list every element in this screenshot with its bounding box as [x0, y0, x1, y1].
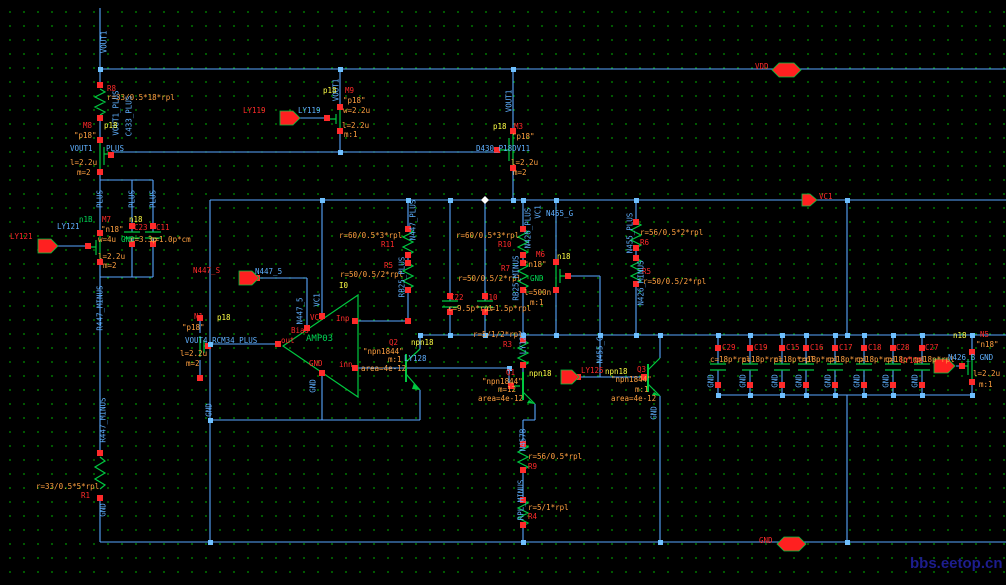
net-gnd-vertical-c15[interactable]: GND — [771, 374, 779, 388]
m8-model[interactable]: p18 — [104, 122, 118, 130]
n447s-pin-label[interactable]: N447_S — [193, 267, 220, 275]
m7-model-quoted[interactable]: "n18" — [101, 226, 124, 234]
m8-length[interactable]: l=2.2u — [70, 159, 97, 167]
n455g-net-label[interactable]: N455_G — [546, 210, 573, 218]
net-plus-label[interactable]: PLUS — [106, 145, 124, 153]
c18-name[interactable]: C18 — [868, 344, 882, 352]
n447s-net-label[interactable]: N447_5 — [255, 268, 282, 276]
r10-value[interactable]: r=60/0.5*3*rpl — [456, 232, 519, 240]
n1-mult[interactable]: m=2 — [186, 360, 200, 368]
ly125-pin-label[interactable]: LY125 — [581, 367, 604, 375]
n5-length[interactable]: l=2.2u — [973, 370, 1000, 378]
opamp-pin-gnd[interactable]: GND — [309, 360, 323, 368]
ly119-net-label[interactable]: LY119 — [298, 107, 321, 115]
net-c433plus-vertical[interactable]: C433_PLUS — [125, 96, 133, 137]
ly121-net-label[interactable]: LY121 — [57, 223, 80, 231]
r11-name[interactable]: R11 — [381, 241, 395, 249]
c10-name[interactable]: C10 — [484, 294, 498, 302]
n1-model-quoted[interactable]: "p18" — [182, 324, 205, 332]
opamp-pin-vc1[interactable]: VC1 — [310, 314, 324, 322]
r5-name[interactable]: R5 — [384, 262, 393, 270]
net-gnd-vertical-opamp[interactable]: GND — [309, 379, 317, 393]
m9-length[interactable]: l=2.2u — [342, 122, 369, 130]
n5-model[interactable]: n18 — [953, 332, 967, 340]
c29-name[interactable]: C29 — [722, 344, 736, 352]
net-rplminus-vertical[interactable]: RPL_MINUS — [517, 480, 525, 521]
c19-name[interactable]: C19 — [754, 344, 768, 352]
net-plus-vertical-1[interactable]: PLUS — [96, 190, 104, 208]
r9-value[interactable]: r=56/0.5*rpl — [528, 453, 582, 461]
opamp-instance[interactable]: I0 — [339, 282, 348, 290]
c28-name[interactable]: C28 — [896, 344, 910, 352]
net-rb25plus-vertical[interactable]: RB25_PLUS — [398, 257, 406, 298]
m7-width[interactable]: w=4u — [98, 236, 116, 244]
net-vout1-label[interactable]: VOUT1 — [70, 145, 93, 153]
m8-model-quoted[interactable]: "p18" — [74, 132, 97, 140]
n5-name[interactable]: N5 — [980, 331, 989, 339]
net-n426plus-vertical[interactable]: N426_PLUS — [524, 208, 532, 249]
r5-value[interactable]: r=50/0.5/2*rpl — [340, 271, 403, 279]
net-n455g-vertical[interactable]: N455_G — [596, 336, 604, 363]
c22-name[interactable]: C22 — [450, 294, 464, 302]
r6-value[interactable]: r=56/0.5*2*rpl — [640, 229, 703, 237]
c23-name[interactable]: C23 — [134, 224, 148, 232]
net-plus-vertical-2[interactable]: PLUS — [128, 190, 136, 208]
net-n457b-vertical[interactable]: N457B — [519, 429, 527, 452]
m7-name[interactable]: M7 — [102, 216, 111, 224]
ly126-pin-label[interactable]: LY126 — [900, 357, 923, 365]
m3-mult[interactable]: m=2 — [513, 169, 527, 177]
net-r447minus-vertical-2[interactable]: R447_MINUS — [99, 397, 107, 442]
net-d430-label[interactable]: D430_P18DV11 — [476, 145, 530, 153]
net-gnd-vertical-c29[interactable]: GND — [707, 374, 715, 388]
c10-value[interactable]: c=1.5p*rpl — [486, 305, 531, 313]
n1-name[interactable]: N1 — [194, 313, 203, 321]
n1-model[interactable]: p18 — [217, 314, 231, 322]
net-gnd-vertical-c16[interactable]: GND — [795, 374, 803, 388]
net-gnd-vertical-c17[interactable]: GND — [824, 374, 832, 388]
n5-mult[interactable]: m:1 — [979, 381, 993, 389]
net-vc1-vertical-rail[interactable]: VC1 — [534, 205, 542, 219]
m3-model[interactable]: p18 — [493, 123, 507, 131]
r1-name[interactable]: R1 — [81, 492, 90, 500]
r1-value[interactable]: r=33/0.5*5*rpl — [36, 483, 99, 491]
net-gnd-vertical-q3[interactable]: GND — [650, 406, 658, 420]
m6-mult[interactable]: m:1 — [530, 299, 544, 307]
net-ly128-label[interactable]: LY128 — [404, 355, 427, 363]
vc1-pin-label[interactable]: VC1 — [819, 193, 833, 201]
q3-area[interactable]: area=4e-12 — [611, 395, 656, 403]
m7-bulk-net[interactable]: n1B — [79, 216, 93, 224]
net-r447minus-vertical-1[interactable]: R447_MINUS — [96, 285, 104, 330]
net-gnd-vertical-n1[interactable]: GND — [205, 403, 213, 417]
q2-model[interactable]: npn18 — [411, 339, 434, 347]
net-vout4-label[interactable]: VOUT4 RCM34 PLUS — [185, 337, 257, 345]
r6-name[interactable]: R6 — [640, 239, 649, 247]
q2-area[interactable]: area=4e-12 — [361, 365, 406, 373]
net-plus-vertical-3[interactable]: PLUS — [149, 190, 157, 208]
m6-name[interactable]: M6 — [536, 251, 545, 259]
net-vc1-vertical-opamp[interactable]: VC1 — [313, 293, 321, 307]
r4-value[interactable]: r=5/1*rpl — [528, 504, 569, 512]
net-n447-vertical[interactable]: N447_5 — [296, 297, 304, 324]
net-rb25minus-vertical[interactable]: RB25_MINUS — [512, 255, 520, 300]
r11-value[interactable]: r=60/0.5*3*rpl — [339, 232, 402, 240]
m6-bulk[interactable]: GND — [530, 275, 544, 283]
m8-name[interactable]: M8 — [83, 122, 92, 130]
opamp-pin-out[interactable]: out — [281, 337, 295, 345]
r4-name[interactable]: R4 — [528, 513, 537, 521]
c16-name[interactable]: C16 — [810, 344, 824, 352]
schematic-canvas[interactable]: VOUT1R8r=33/0.5*18*rplVOUT1_PLUSC433_PLU… — [0, 0, 1006, 585]
watermark: bbs.eetop.cn — [910, 556, 1003, 571]
q2-name[interactable]: Q2 — [389, 339, 398, 347]
opamp-pin-inn[interactable]: inn — [339, 361, 353, 369]
r9-name[interactable]: R9 — [528, 463, 537, 471]
net-vout1-vertical-3[interactable]: VOUT1 — [505, 90, 513, 113]
m7-length[interactable]: l=2.2u — [98, 253, 125, 261]
c27-name[interactable]: C27 — [925, 344, 939, 352]
q3-model-quoted[interactable]: "npn1844" — [611, 376, 652, 384]
net-n426b-label[interactable]: N426_B GND — [948, 354, 993, 362]
q1-mult[interactable]: m=12 — [498, 386, 516, 394]
n1-length[interactable]: l=2.2u — [180, 350, 207, 358]
r3-value[interactable]: r=5/1/2*rpl — [473, 331, 523, 339]
r10-name[interactable]: R10 — [498, 241, 512, 249]
q1-area[interactable]: area=4e-12 — [478, 395, 523, 403]
m9-mult[interactable]: m:1 — [344, 131, 358, 139]
ly121-pin-label[interactable]: LY121 — [10, 233, 33, 241]
m3-length[interactable]: l=2.2u — [511, 159, 538, 167]
r5b-value[interactable]: r=50/0.5/2*rpl — [643, 278, 706, 286]
ly119-pin-label[interactable]: LY119 — [243, 107, 266, 115]
labels-layer: VOUT1R8r=33/0.5*18*rplVOUT1_PLUSC433_PLU… — [0, 0, 1006, 585]
m9-name[interactable]: M9 — [345, 87, 354, 95]
m7-mult[interactable]: m=2 — [103, 262, 117, 270]
m3-model-quoted[interactable]: "p18" — [512, 133, 535, 141]
m9-model-quoted[interactable]: "p18" — [343, 97, 366, 105]
m6-length[interactable]: l=500n — [524, 289, 551, 297]
net-gnd-vertical-c28[interactable]: GND — [882, 374, 890, 388]
m9-width[interactable]: w=2.2u — [343, 107, 370, 115]
r7-name[interactable]: R7 — [501, 265, 510, 273]
net-n426minus-vertical[interactable]: N426_MINUS — [637, 260, 645, 305]
c11-value[interactable]: c=1.0p*cm — [150, 236, 191, 244]
c17-name[interactable]: C17 — [839, 344, 853, 352]
m3-name[interactable]: M3 — [514, 123, 523, 131]
m6-model-quoted[interactable]: "n18" — [524, 261, 547, 269]
q2-mult[interactable]: m:1 — [388, 356, 402, 364]
net-n455plus-vertical[interactable]: N455_PLUS — [626, 213, 634, 254]
q1-name[interactable]: Q1 — [506, 369, 515, 377]
r3-name[interactable]: R3 — [503, 341, 512, 349]
opamp-pin-inp[interactable]: Inp — [336, 315, 350, 323]
net-gnd-vertical-c18[interactable]: GND — [853, 374, 861, 388]
n5-model-quoted[interactable]: "n18" — [976, 341, 999, 349]
net-gnd-vertical-c27[interactable]: GND — [911, 374, 919, 388]
q1-model[interactable]: npn18 — [529, 370, 552, 378]
net-gnd-vertical-c19[interactable]: GND — [739, 374, 747, 388]
gnd-pin-label[interactable]: GND — [759, 537, 773, 545]
net-vout1-vertical-1[interactable]: VOUT1 — [100, 31, 108, 54]
vdd-pin-label[interactable]: VDD — [755, 63, 769, 71]
m9-model[interactable]: p18 — [323, 87, 337, 95]
q3-name[interactable]: Q3 — [637, 366, 646, 374]
c11-name[interactable]: C11 — [156, 224, 170, 232]
m8-mult[interactable]: m=2 — [77, 169, 91, 177]
c15-name[interactable]: C15 — [786, 344, 800, 352]
net-n447plus-vertical[interactable]: N447_PLUS — [409, 200, 417, 241]
q3-mult[interactable]: m:1 — [635, 386, 649, 394]
opamp-name[interactable]: AMP03 — [306, 335, 333, 344]
m6-model[interactable]: n18 — [557, 253, 571, 261]
net-gnd-vertical-left[interactable]: GND — [99, 503, 107, 517]
